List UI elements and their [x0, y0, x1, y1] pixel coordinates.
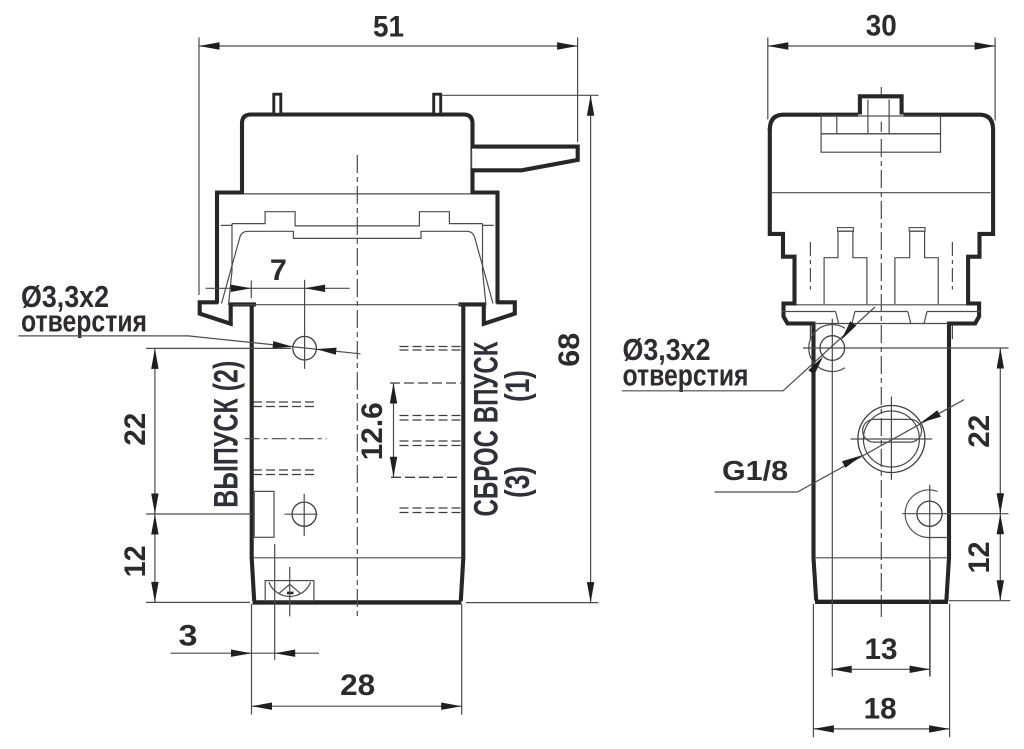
svg-text:7: 7 [270, 254, 287, 287]
svg-text:(1): (1) [499, 370, 537, 402]
svg-text:G1/8: G1/8 [722, 455, 788, 486]
svg-text:12: 12 [963, 542, 996, 574]
svg-text:22: 22 [963, 415, 996, 448]
svg-text:28: 28 [340, 669, 375, 702]
svg-text:12.6: 12.6 [356, 402, 389, 460]
svg-text:18: 18 [864, 692, 897, 725]
svg-text:13: 13 [865, 633, 898, 666]
svg-text:30: 30 [866, 9, 897, 42]
svg-text:22: 22 [119, 413, 152, 446]
svg-text:3: 3 [179, 619, 198, 652]
svg-text:12: 12 [119, 545, 152, 577]
svg-text:(3): (3) [499, 466, 537, 498]
svg-text:отверстия: отверстия [623, 357, 749, 392]
svg-text:68: 68 [553, 333, 586, 367]
svg-text:ВЫПУСК (2): ВЫПУСК (2) [208, 361, 246, 508]
svg-text:отверстия: отверстия [21, 304, 147, 339]
svg-text:51: 51 [373, 11, 404, 44]
